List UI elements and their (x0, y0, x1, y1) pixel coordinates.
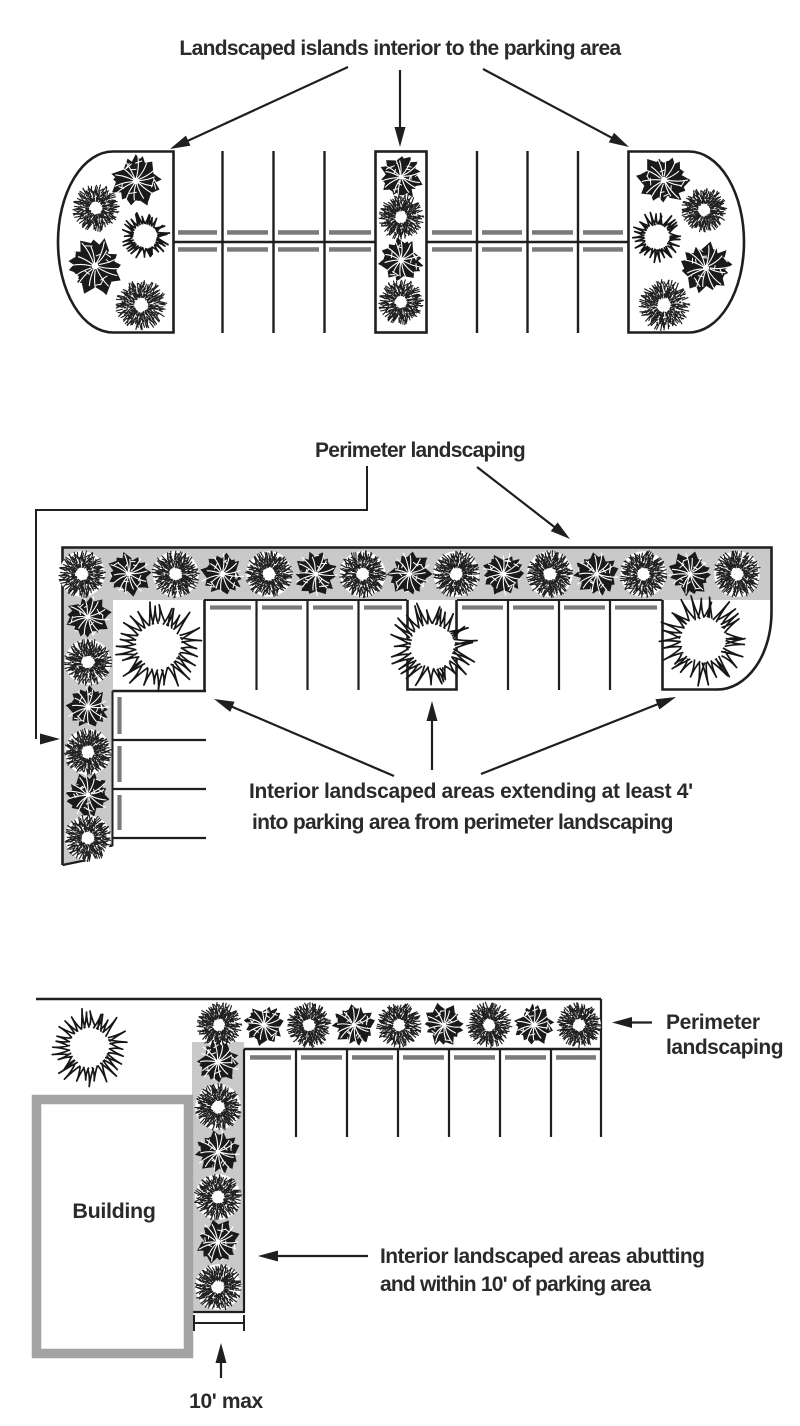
svg-text:and within 10' of parking area: and within 10' of parking area (380, 1273, 652, 1296)
svg-text:into parking area from perimet: into parking area from perimeter landsca… (252, 811, 673, 834)
svg-text:10' max: 10' max (189, 1390, 263, 1413)
svg-text:Building: Building (72, 1199, 155, 1223)
svg-text:Perimeter landscaping: Perimeter landscaping (315, 439, 525, 462)
svg-text:Interior landscaped areas exte: Interior landscaped areas extending at l… (249, 780, 693, 803)
svg-text:Perimeter: Perimeter (666, 1011, 760, 1034)
svg-text:Interior landscaped areas abut: Interior landscaped areas abutting (380, 1245, 704, 1268)
svg-text:Landscaped islands interior to: Landscaped islands interior to the parki… (179, 37, 621, 60)
svg-text:landscaping: landscaping (666, 1036, 783, 1059)
